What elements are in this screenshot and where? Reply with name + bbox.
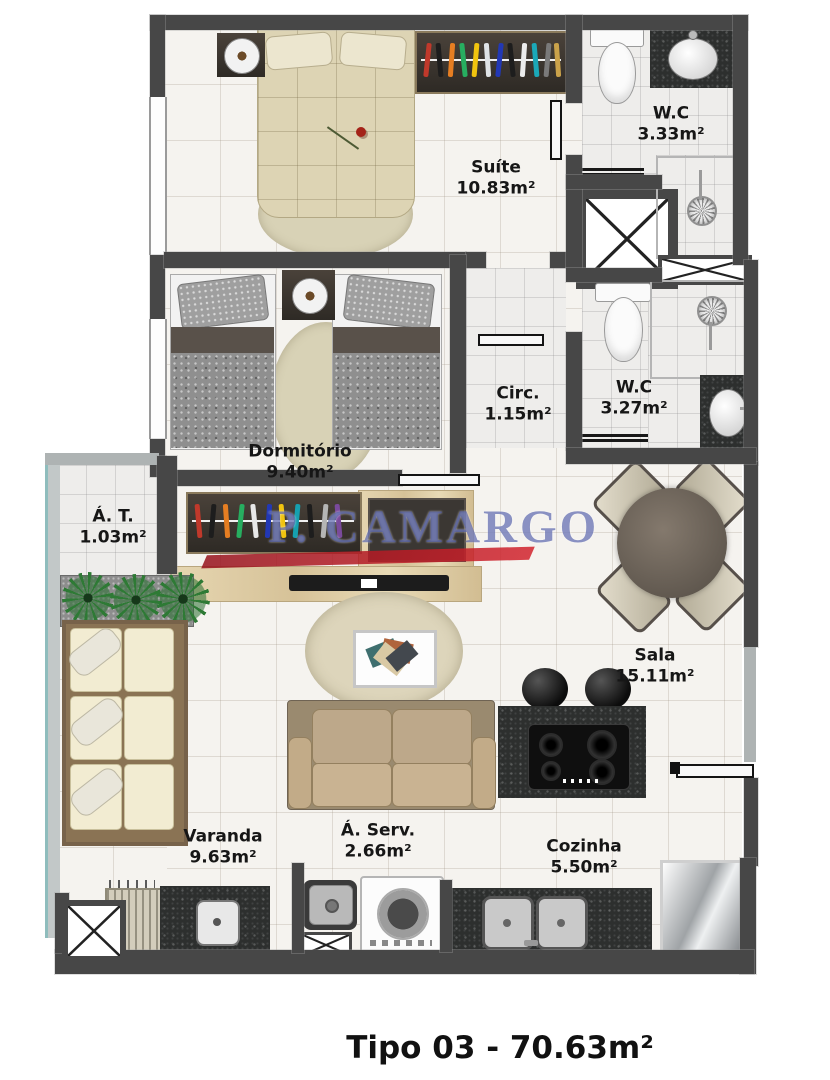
kitchen-island xyxy=(498,706,646,798)
sofa xyxy=(287,700,495,810)
room-label-wc1: W.C 3.33m² xyxy=(637,103,704,144)
sofa-back-cushion xyxy=(312,709,392,765)
clothes-item xyxy=(554,43,561,77)
wc1-vanity xyxy=(650,28,734,88)
floor-plan-canvas: Suíte 10.83m² W.C 3.33m² Circ. 1.15m² W.… xyxy=(0,0,830,1080)
wall-segment xyxy=(440,880,452,952)
single-bed xyxy=(332,274,442,450)
room-label-aserv: Á. Serv. 2.66m² xyxy=(341,820,415,861)
bed-band xyxy=(333,327,440,353)
wall-segment xyxy=(292,863,304,953)
sink-oval xyxy=(709,389,747,437)
room-area: 3.33m² xyxy=(637,124,704,145)
room-label-suite: Suíte 10.83m² xyxy=(457,157,536,198)
bed-band xyxy=(171,327,274,353)
washer-panel xyxy=(370,940,432,946)
faucet-icon xyxy=(688,30,698,40)
room-name: Á. Serv. xyxy=(341,820,415,841)
door-leaf-dormitorio xyxy=(398,474,480,486)
wall-segment xyxy=(150,255,165,319)
door-leaf-wc1 xyxy=(550,100,562,160)
room-name: Varanda xyxy=(183,826,262,847)
sofa-cushion xyxy=(124,764,174,830)
tv-rack xyxy=(170,566,482,602)
wall-segment xyxy=(566,332,582,450)
door-leaf-entry xyxy=(676,764,754,778)
door-leaf-suite xyxy=(478,334,544,346)
wall-segment xyxy=(733,15,748,265)
room-area: 9.40m² xyxy=(248,462,351,483)
drain-icon xyxy=(503,919,511,927)
grill-skewers xyxy=(109,880,155,888)
clothes-item xyxy=(484,43,491,77)
room-area: 2.66m² xyxy=(341,841,415,862)
drain-icon xyxy=(213,918,221,926)
varanda-counter xyxy=(160,886,270,950)
wall-segment xyxy=(55,950,754,974)
room-name: Á. T. xyxy=(79,506,146,527)
rose-icon xyxy=(356,127,366,137)
room-label-dormitorio: Dormitório 9.40m² xyxy=(248,441,351,482)
room-area: 1.03m² xyxy=(79,527,146,548)
room-name: Suíte xyxy=(457,157,536,178)
sofa-seat-cushion xyxy=(312,763,392,807)
wall-segment xyxy=(566,268,662,282)
shaft-x-icon xyxy=(68,906,120,956)
shower-stall xyxy=(650,280,748,379)
suite-wardrobe xyxy=(415,31,569,94)
washer-drum xyxy=(377,888,429,940)
toilet-bowl xyxy=(604,297,643,362)
single-bed xyxy=(170,274,276,450)
laundry-tank xyxy=(303,880,357,930)
soundbar-center xyxy=(361,579,377,588)
wall-segment xyxy=(150,15,748,30)
room-name: Sala xyxy=(616,645,695,666)
shower-head-icon xyxy=(687,196,717,226)
bed-pillow xyxy=(343,274,436,330)
room-label-circ: Circ. 1.15m² xyxy=(484,383,551,424)
kitchen-counter xyxy=(452,888,652,950)
room-label-cozinha: Cozinha 5.50m² xyxy=(546,836,622,877)
wall-segment xyxy=(466,252,486,268)
varanda-railing xyxy=(45,460,60,938)
sofa-back-cushion xyxy=(392,709,472,765)
wall-segment xyxy=(566,15,582,103)
burner xyxy=(587,730,617,760)
sofa-armrest xyxy=(288,737,312,809)
drain-icon xyxy=(325,899,339,913)
wall-segment xyxy=(164,252,466,268)
bed-pillow xyxy=(265,31,334,71)
towel-rail xyxy=(578,434,648,437)
sofa-seat-cushion xyxy=(392,763,472,807)
towel-rail xyxy=(578,168,644,171)
room-label-varanda: Varanda 9.63m² xyxy=(183,826,262,867)
toilet xyxy=(595,283,649,365)
wall-segment xyxy=(450,255,466,473)
room-name: Dormitório xyxy=(248,441,351,462)
room-name: W.C xyxy=(600,377,667,398)
fan-icon xyxy=(224,38,260,74)
fridge xyxy=(660,860,746,958)
varanda-sofa xyxy=(62,620,188,846)
room-name: Cozinha xyxy=(546,836,622,857)
bed-blanket xyxy=(333,353,440,448)
room-name: W.C xyxy=(637,103,704,124)
room-area: 10.83m² xyxy=(457,178,536,199)
clothes-item xyxy=(223,504,230,538)
sink-square xyxy=(196,900,240,946)
room-label-wc2: W.C 3.27m² xyxy=(600,377,667,418)
cooktop-controls xyxy=(563,779,599,783)
wall-segment xyxy=(744,778,758,866)
room-area: 1.15m² xyxy=(484,404,551,425)
wall-segment xyxy=(566,175,662,189)
plant-icon xyxy=(62,572,114,624)
wall-segment xyxy=(744,462,758,647)
sofa-armrest xyxy=(472,737,496,809)
bed-pillow xyxy=(339,31,408,71)
drain-icon xyxy=(557,919,565,927)
room-label-at: Á. T. 1.03m² xyxy=(79,506,146,547)
shower-stem xyxy=(699,170,702,200)
wall-segment xyxy=(566,155,582,268)
room-area: 5.50m² xyxy=(546,857,622,878)
wall-segment-light xyxy=(45,453,159,465)
sink-square xyxy=(536,896,588,950)
dining-table xyxy=(617,488,727,598)
wall-segment xyxy=(566,448,756,464)
wall-segment xyxy=(157,456,177,574)
door-handle-icon xyxy=(670,762,680,774)
toilet xyxy=(590,28,642,106)
room-label-sala: Sala 15.11m² xyxy=(616,645,695,686)
sofa-cushion xyxy=(124,696,174,760)
burner xyxy=(539,733,563,757)
lamp-icon xyxy=(292,278,328,314)
window xyxy=(149,319,167,439)
sofa-cushion xyxy=(124,628,174,692)
wall-segment xyxy=(744,260,758,465)
dorm-nightstand xyxy=(282,270,335,320)
shower-head-icon xyxy=(697,296,727,326)
plan-title: Tipo 03 - 70.63m² xyxy=(346,1030,654,1066)
watermark-logo: P. CAMARGO xyxy=(268,500,599,554)
shower-stem xyxy=(709,322,712,350)
bed-pillow xyxy=(177,274,270,330)
bar-stool xyxy=(522,668,568,710)
window xyxy=(149,97,167,255)
duct-shaft-small xyxy=(62,900,126,962)
sink-oval xyxy=(668,38,718,80)
toilet-bowl xyxy=(598,42,636,104)
room-area: 15.11m² xyxy=(616,666,695,687)
room-area: 9.63m² xyxy=(183,847,262,868)
room-name: Circ. xyxy=(484,383,551,404)
cooktop xyxy=(528,724,630,790)
faucet-icon xyxy=(524,940,538,946)
bed-blanket xyxy=(171,353,274,448)
burner xyxy=(541,761,561,781)
wall-segment-light xyxy=(744,647,756,762)
double-bed xyxy=(257,28,415,218)
coffee-table xyxy=(353,630,437,688)
room-area: 3.27m² xyxy=(600,398,667,419)
rose-stem xyxy=(327,126,359,149)
washing-machine xyxy=(360,876,444,954)
suite-nightstand xyxy=(217,33,265,77)
wall-segment xyxy=(150,15,165,97)
